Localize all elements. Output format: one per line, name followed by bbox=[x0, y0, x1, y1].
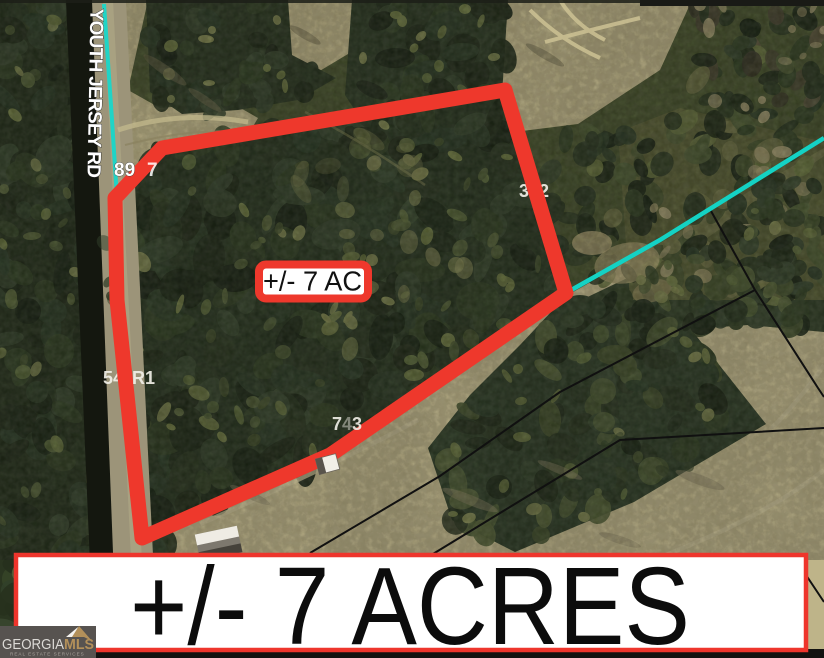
svg-text:R1: R1 bbox=[132, 368, 155, 388]
svg-text:REAL ESTATE SERVICES: REAL ESTATE SERVICES bbox=[10, 652, 85, 657]
svg-text:+/- 7 ACRES: +/- 7 ACRES bbox=[130, 545, 690, 658]
svg-text:89: 89 bbox=[114, 160, 135, 181]
svg-text:743: 743 bbox=[332, 414, 362, 434]
svg-text:7: 7 bbox=[147, 160, 158, 181]
svg-text:YOUTH JERSEY RD: YOUTH JERSEY RD bbox=[83, 8, 107, 177]
svg-text:+/- 7 AC: +/- 7 AC bbox=[263, 266, 362, 297]
